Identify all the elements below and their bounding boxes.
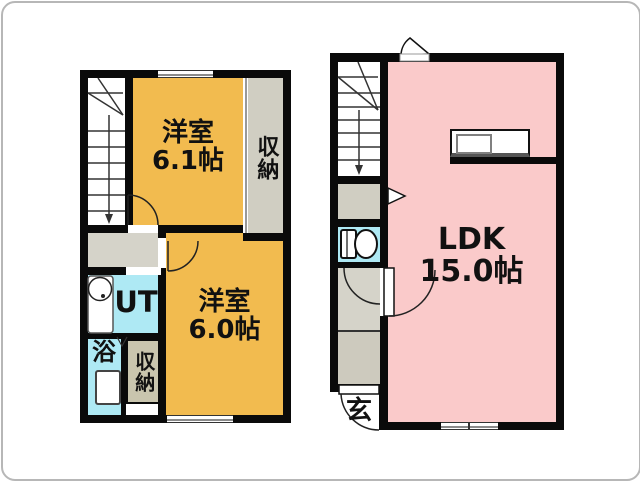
closet-lower-label: 収納 <box>128 344 158 400</box>
room-size: 6.1帖 <box>152 147 224 175</box>
entrance-label: 玄 <box>342 395 376 427</box>
room-6-1-label: 洋室 6.1帖 <box>133 114 243 180</box>
stairs-arrow-icon <box>105 214 113 224</box>
room-name: LDK <box>438 224 505 256</box>
stairs-arrow-icon <box>355 165 363 175</box>
window <box>441 422 498 430</box>
closet-upper-label: 収納 <box>250 120 281 196</box>
room-size: 15.0帖 <box>419 256 523 288</box>
room-name: 洋室 <box>198 288 250 316</box>
ldk-label: LDK 15.0帖 <box>404 210 539 302</box>
wall <box>283 70 291 423</box>
left-plan-interior: 洋室 6.1帖 収納 UT 浴 収納 洋室 6.0帖 <box>88 78 283 415</box>
door-arc-room60 <box>168 241 198 271</box>
bath-label: 浴 <box>88 338 120 368</box>
door-arc-hall <box>344 268 380 304</box>
window <box>158 70 213 78</box>
opening-triangle-icon <box>388 188 405 204</box>
right-floor-plan: LDK 15.0帖 玄 <box>330 53 564 430</box>
room-6-0-label: 洋室 6.0帖 <box>166 283 283 349</box>
bathtub-icon <box>96 371 120 404</box>
left-floor-plan: 洋室 6.1帖 収納 UT 浴 収納 洋室 6.0帖 <box>80 70 291 423</box>
room-size: 6.0帖 <box>188 316 260 344</box>
stairs-icon <box>338 62 380 175</box>
utility-label: UT <box>110 286 162 320</box>
wall <box>80 70 88 423</box>
window <box>167 415 233 423</box>
door-arc-room61 <box>128 195 158 225</box>
toilet-icon <box>341 230 377 258</box>
stairs-icon <box>88 78 125 224</box>
room-name: 洋室 <box>162 119 214 147</box>
